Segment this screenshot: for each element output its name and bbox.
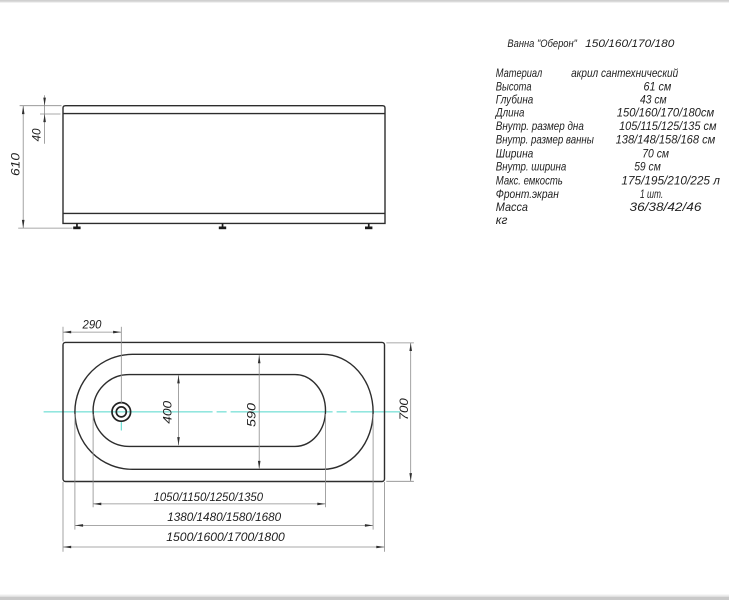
svg-text:61 см: 61 см (644, 79, 672, 93)
svg-text:1380/1480/1580/1680: 1380/1480/1580/1680 (167, 512, 281, 524)
svg-text:150/160/170/180: 150/160/170/180 (585, 38, 674, 50)
svg-text:36/38/42/46: 36/38/42/46 (630, 200, 702, 214)
svg-text:акрил сантехнический: акрил сантехнический (571, 66, 678, 80)
svg-text:Высота: Высота (496, 79, 532, 93)
svg-text:1500/1600/1700/1800: 1500/1600/1700/1800 (166, 532, 285, 544)
svg-text:Ширина: Ширина (496, 146, 534, 160)
svg-text:40: 40 (30, 128, 44, 141)
svg-text:138/148/158/168 см: 138/148/158/168 см (616, 132, 716, 146)
svg-text:59 см: 59 см (634, 160, 661, 174)
svg-text:150/160/170/180см: 150/160/170/180см (617, 105, 714, 119)
svg-text:Ванна "Оберон": Ванна "Оберон" (507, 38, 578, 50)
svg-text:400: 400 (163, 400, 175, 424)
svg-text:105/115/125/135 см: 105/115/125/135 см (619, 119, 716, 133)
svg-text:1050/1150/1250/1350: 1050/1150/1250/1350 (154, 492, 264, 504)
svg-text:Внутр. размер ванны: Внутр. размер ванны (496, 132, 594, 146)
svg-text:Внутр. размер дна: Внутр. размер дна (496, 119, 584, 133)
svg-text:700: 700 (399, 398, 411, 421)
svg-text:590: 590 (246, 402, 258, 427)
svg-text:175/195/210/225 л: 175/195/210/225 л (621, 173, 720, 187)
svg-text:Материал: Материал (496, 66, 543, 80)
svg-text:Макс. емкость: Макс. емкость (496, 173, 563, 187)
svg-text:Фронт.экран: Фронт.экран (496, 187, 559, 201)
svg-text:70 см: 70 см (642, 146, 669, 160)
svg-text:кг: кг (496, 213, 508, 227)
svg-text:1 шт.: 1 шт. (640, 187, 663, 201)
svg-text:Внутр. ширина: Внутр. ширина (496, 160, 567, 174)
svg-text:290: 290 (82, 320, 102, 332)
svg-text:Длина: Длина (494, 105, 524, 119)
svg-text:610: 610 (9, 153, 23, 176)
